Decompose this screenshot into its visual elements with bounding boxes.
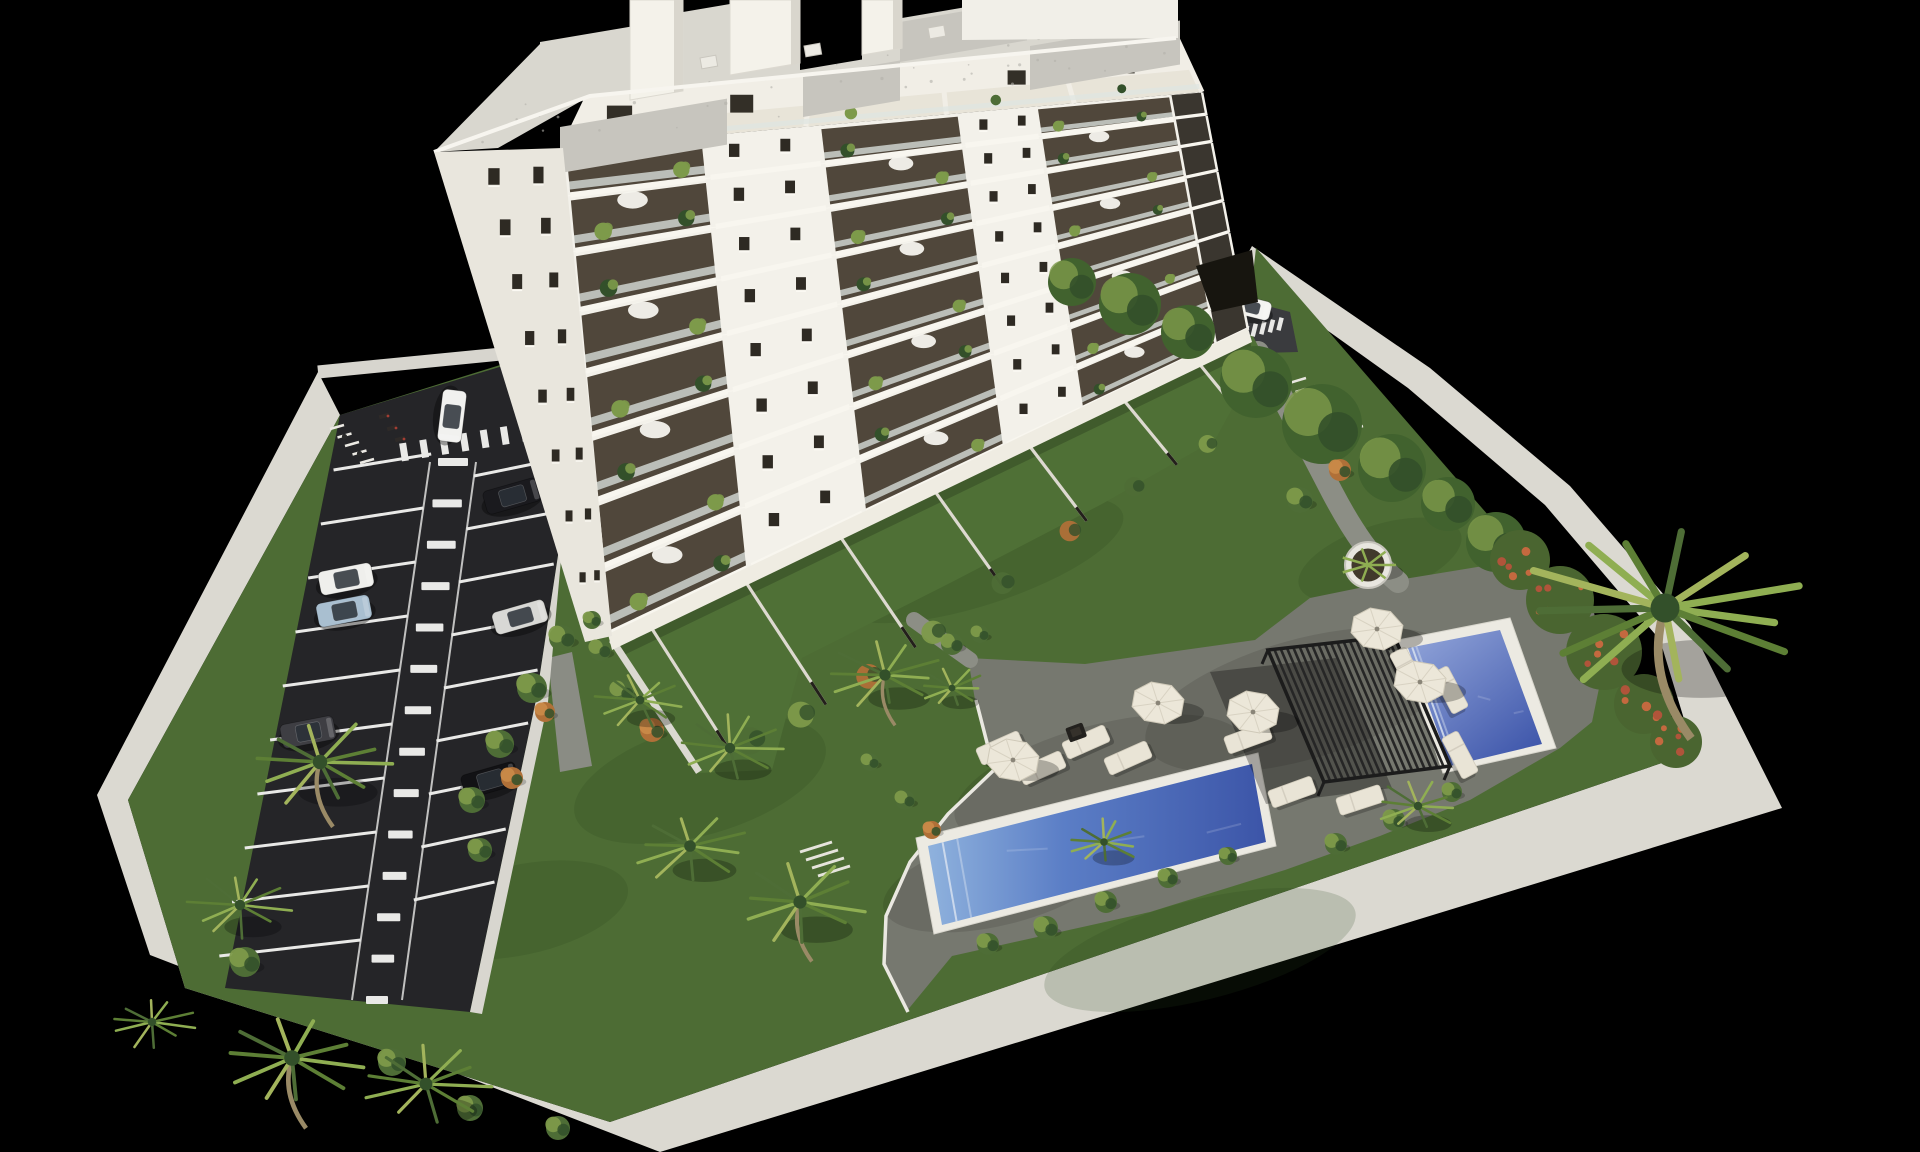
side-window	[585, 508, 591, 519]
balcony-plant	[863, 277, 871, 285]
balcony-plant	[1157, 205, 1163, 211]
crosswalk-dash	[394, 789, 419, 797]
roof-speckle	[968, 64, 970, 66]
shrub	[980, 631, 989, 640]
facade-window	[990, 191, 998, 201]
penthouse-window	[1008, 70, 1026, 84]
balcony-awning	[640, 421, 671, 438]
balcony-awning	[1089, 131, 1109, 142]
terrace-shrub	[1001, 575, 1014, 588]
umbrella-pole	[1156, 701, 1161, 706]
shrub	[592, 617, 601, 626]
flower-cluster	[1642, 702, 1651, 711]
facade-window	[745, 289, 755, 302]
flower-cluster	[1661, 725, 1667, 731]
palm-shadow	[714, 759, 771, 780]
facade-window	[769, 513, 779, 526]
flower-cluster	[1655, 737, 1663, 745]
shrub	[951, 640, 962, 651]
terrace-shrub	[1069, 524, 1081, 536]
palm-crown-center	[949, 685, 956, 692]
side-window	[500, 219, 511, 235]
shrub	[499, 739, 513, 753]
shrub	[905, 797, 915, 807]
facade-window	[1052, 344, 1060, 354]
balcony-plant	[847, 144, 855, 152]
flower-cluster	[1676, 748, 1684, 756]
palm-frond	[646, 845, 690, 846]
facade-window	[808, 381, 818, 394]
balcony-plant	[1074, 225, 1081, 232]
balcony-plant	[715, 494, 725, 504]
balcony-awning	[1100, 198, 1120, 209]
roof-speckle	[778, 116, 780, 118]
facade-window	[1023, 148, 1031, 158]
roof-speckle	[1007, 44, 1010, 47]
hedge-tree	[1252, 371, 1288, 407]
roof-speckle	[840, 80, 843, 83]
roof-vent	[700, 55, 718, 69]
umbrella-pole	[1375, 627, 1380, 632]
palm-crown-center	[1651, 594, 1680, 623]
shrub	[545, 709, 555, 719]
facade-window	[780, 139, 790, 152]
roof-speckle	[1104, 70, 1106, 72]
hedge-tree	[1445, 496, 1472, 523]
side-window	[558, 329, 566, 343]
render-canvas	[0, 0, 1920, 1152]
balcony-plant	[1099, 384, 1106, 391]
palm-crown-center	[636, 696, 645, 705]
balcony-plant	[1141, 112, 1147, 118]
crosswalk-dash	[372, 955, 395, 963]
facade-window	[1028, 184, 1036, 194]
flower-cluster	[1536, 585, 1543, 592]
balcony-plant	[857, 230, 865, 238]
side-window	[567, 388, 575, 401]
balcony-plant	[1151, 172, 1157, 178]
flower-cluster	[1509, 572, 1517, 580]
roof-speckle	[970, 72, 972, 74]
balcony-plant	[680, 162, 690, 172]
facade-window	[734, 188, 744, 201]
flower-cluster	[1522, 547, 1531, 556]
facade-window	[1046, 303, 1054, 313]
facade-window	[984, 153, 992, 163]
palm-shadow	[1093, 850, 1135, 865]
shrub	[987, 940, 998, 951]
side-window	[594, 570, 600, 580]
facade-window	[820, 491, 830, 504]
facade-window	[790, 228, 800, 241]
balcony-plant	[721, 555, 731, 565]
facade-window	[995, 231, 1003, 241]
parked-bicycle	[342, 434, 347, 439]
chimney-shade-face	[674, 0, 683, 93]
roof-speckle	[930, 80, 933, 83]
crosswalk-dash	[377, 913, 400, 921]
shrub	[479, 846, 491, 858]
facade-window	[756, 398, 766, 411]
palm-crown-center	[684, 840, 696, 852]
palm-shadow	[942, 695, 979, 709]
roof-speckle	[913, 67, 915, 69]
balcony-plant	[947, 212, 955, 220]
chimney-shade-face	[893, 0, 902, 50]
palm-shadow	[1622, 640, 1782, 698]
roof-speckle	[1068, 67, 1070, 69]
balcony-plant	[702, 375, 712, 385]
crosswalk-dash	[416, 624, 444, 632]
palm-crown-center	[793, 895, 806, 908]
crosswalk-dash	[405, 706, 431, 714]
parked-bicycle	[357, 451, 362, 456]
aerial-render	[0, 0, 1920, 1152]
roof-vent	[804, 43, 822, 57]
facade-window	[1001, 273, 1009, 283]
shrub	[1168, 875, 1178, 885]
side-window	[538, 390, 546, 403]
shrub	[1339, 466, 1350, 477]
flower-cluster	[1544, 584, 1551, 591]
shrub	[1045, 924, 1057, 936]
roof-speckle	[633, 101, 636, 104]
palm-shadow	[269, 1075, 355, 1106]
side-window	[580, 572, 586, 582]
roof-speckle	[963, 78, 966, 81]
crosswalk-dash	[410, 665, 437, 673]
shrub	[599, 646, 610, 657]
roof-speckle	[1036, 59, 1039, 62]
roof-speckle	[1163, 52, 1166, 55]
hedge-tree	[1070, 275, 1094, 299]
chimney-shade-face	[791, 0, 800, 65]
roof-speckle	[598, 129, 601, 132]
facade-window	[739, 237, 749, 250]
shrub	[1105, 898, 1116, 909]
balcony-awning	[911, 334, 936, 348]
palm-shadow	[868, 687, 930, 709]
palm-crown-center	[1414, 802, 1422, 810]
flower-cluster	[1584, 660, 1591, 667]
balcony-awning	[652, 546, 683, 563]
balcony-plant	[625, 463, 636, 474]
roof-chimney	[730, 0, 800, 75]
balcony-plant	[964, 345, 972, 353]
palm-shadow	[139, 1031, 185, 1048]
balcony-plant	[685, 210, 695, 220]
motorcycle-light	[395, 427, 398, 430]
roof-speckle	[706, 105, 708, 107]
roof-speckle	[542, 129, 544, 131]
facade-window	[1018, 116, 1026, 126]
facade-window	[979, 119, 987, 129]
balcony-plant	[619, 400, 630, 411]
palm-crown-center	[1100, 838, 1108, 846]
palm-shadow	[224, 916, 281, 937]
facade-window	[750, 343, 760, 356]
roof-speckle	[724, 102, 727, 105]
crosswalk-dash	[366, 996, 388, 1004]
balcony-awning	[628, 302, 659, 319]
roof-speckle	[1125, 45, 1128, 48]
side-window	[549, 272, 558, 287]
penthouse-plant	[990, 95, 1001, 106]
roof-speckle	[1011, 82, 1014, 85]
motorcycle-light	[387, 415, 390, 418]
roof-speckle	[880, 77, 883, 80]
palm-crown-center	[879, 669, 890, 680]
umbrella-pole	[1418, 680, 1423, 685]
palm-frond	[730, 748, 783, 749]
shrub	[511, 774, 522, 785]
side-window	[552, 449, 560, 461]
flower-cluster	[1675, 734, 1681, 740]
car-cabin	[442, 404, 462, 430]
balcony-plant	[1169, 274, 1175, 280]
hedge-tree	[1127, 295, 1158, 326]
sky-notch	[800, 0, 862, 70]
shrub	[531, 683, 546, 698]
side-window	[488, 168, 499, 185]
roof-speckle	[887, 54, 889, 56]
side-window	[512, 274, 522, 289]
crosswalk-dash	[438, 458, 468, 466]
facade-window	[814, 435, 824, 448]
roof-speckle	[676, 127, 678, 129]
roof-speckle	[1007, 64, 1009, 66]
hedge-tree	[1389, 458, 1423, 492]
side-window	[525, 331, 534, 345]
roof-speckle	[770, 86, 772, 88]
terrace-shrub	[799, 705, 815, 721]
shrub	[244, 957, 259, 972]
umbrella-pole	[1011, 758, 1016, 763]
motorcycle-light	[403, 438, 406, 441]
balcony-plant	[1058, 121, 1065, 128]
facade-window	[1058, 387, 1066, 397]
balcony-awning	[889, 157, 914, 171]
palm-crown-center	[420, 1078, 433, 1091]
shrub	[1335, 840, 1346, 851]
palm-shadow	[1405, 815, 1451, 832]
palm-shadow	[298, 778, 377, 807]
side-window	[533, 167, 543, 184]
roof-vent	[928, 25, 946, 39]
roof-speckle	[557, 116, 560, 119]
balcony-plant	[958, 300, 966, 308]
terrace-shrub	[1133, 480, 1145, 492]
roof-speckle	[904, 86, 907, 89]
balcony-plant	[608, 279, 619, 290]
facade-window	[1019, 404, 1027, 414]
hedge-tree	[1318, 412, 1358, 452]
flower-cluster	[1505, 563, 1511, 569]
flower-cluster	[1594, 651, 1601, 658]
penthouse-plant	[1117, 84, 1126, 93]
side-window	[566, 510, 573, 521]
palm-crown-center	[148, 1018, 156, 1026]
hedge-tree	[1185, 324, 1212, 351]
flower-cluster	[1497, 557, 1506, 566]
facade-window	[796, 277, 806, 290]
terrace-shrub	[1207, 438, 1218, 449]
crosswalk-dash	[432, 499, 461, 507]
shrub	[1228, 853, 1237, 862]
palm-crown-center	[313, 755, 327, 769]
balcony-plant	[602, 223, 613, 234]
palm-crown-center	[725, 743, 735, 753]
crosswalk-dash	[388, 830, 412, 838]
roof-speckle	[1018, 63, 1021, 66]
crosswalk-dash	[421, 582, 449, 590]
umbrella-pole	[1251, 710, 1256, 715]
flower-cluster	[1622, 697, 1629, 704]
balcony-awning	[617, 191, 648, 208]
shrub	[471, 795, 484, 808]
balcony-plant	[696, 318, 706, 328]
flower-cluster	[1653, 710, 1662, 719]
side-window	[576, 448, 583, 460]
roof-speckle	[481, 141, 484, 144]
shrub	[557, 1124, 569, 1136]
balcony-plant	[977, 439, 985, 447]
shrub	[870, 759, 879, 768]
shrub	[1452, 789, 1462, 799]
crosswalk-dash	[427, 541, 456, 549]
balcony-awning	[1124, 346, 1144, 357]
palm-frond	[831, 674, 885, 675]
flower-cluster	[1621, 685, 1630, 694]
balcony-plant	[637, 593, 648, 604]
palm-crown-center	[284, 1050, 300, 1066]
roof-speckle	[1054, 60, 1056, 62]
side-window	[541, 218, 551, 234]
facade-window	[802, 329, 812, 342]
crosswalk-dash	[399, 748, 425, 756]
palm-shadow	[407, 1098, 477, 1124]
roof-speckle	[525, 103, 527, 105]
palm-crown-center	[235, 900, 245, 910]
facade-window	[729, 144, 739, 157]
facade-window	[1040, 262, 1048, 272]
balcony-plant	[941, 171, 949, 179]
balcony-plant	[1092, 343, 1099, 350]
penthouse-window	[730, 95, 753, 113]
crosswalk-dash	[383, 872, 407, 880]
facade-window	[763, 455, 773, 468]
balcony-plant	[881, 427, 889, 435]
facade-window	[1007, 315, 1015, 325]
shrub	[1299, 495, 1312, 508]
roof-speckle	[836, 64, 838, 66]
balcony-awning	[899, 242, 924, 256]
balcony-plant	[1063, 153, 1070, 160]
facade-window	[1013, 359, 1021, 369]
facade-window	[785, 181, 795, 194]
palm-frond	[1540, 608, 1665, 611]
palm-frond	[320, 762, 392, 764]
roof-parapet-band	[962, 0, 1178, 40]
shrub	[932, 827, 941, 836]
shrub	[561, 633, 574, 646]
balcony-plant	[875, 376, 883, 384]
balcony-awning	[924, 431, 949, 445]
facade-window	[1034, 222, 1042, 232]
